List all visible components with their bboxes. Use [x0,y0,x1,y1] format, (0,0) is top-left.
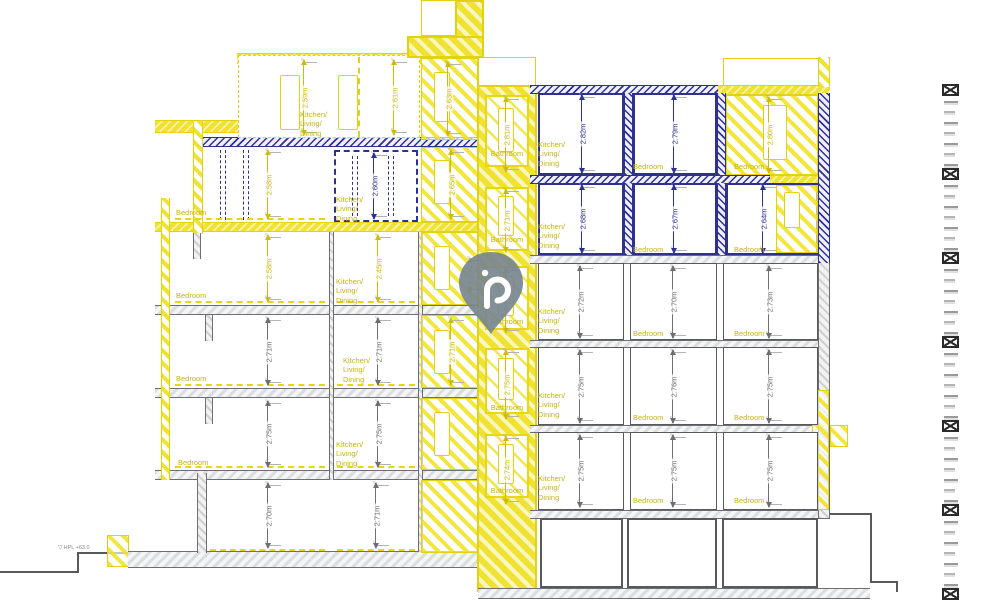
level-marker [270,320,281,321]
dimension-label: 2.75m [670,459,678,484]
floor-slab [155,388,478,398]
ground-slab [128,551,478,568]
level-marker [771,504,782,505]
level-marker [396,62,407,63]
tower-wall [455,0,484,38]
terrace-line [830,513,872,515]
exterior-wall-blue [818,93,830,263]
level-marker [675,268,686,269]
room-label: Kitchen/ Living/ Dining [538,474,565,502]
interior-wall-blue [717,93,726,175]
level-marker [508,99,519,100]
wall-hatch-yellow [830,425,848,447]
interior-wall [329,232,334,480]
room-label: Kitchen/ Living/ Dining [343,356,370,384]
scale-tick [944,311,958,313]
dimension-label: 2.75m [265,422,273,447]
attic-window [280,75,300,130]
scale-tick [944,447,955,449]
level-marker [270,237,281,238]
dimension-label: 2.61m [391,85,399,110]
room-label: Kitchen/ Living/ Dining [538,140,565,168]
level-marker [306,62,317,63]
dimension-line: 2.75m [377,401,378,467]
level-marker [376,216,387,217]
scale-tick [944,132,955,134]
level-marker [376,155,387,156]
level-marker [380,403,391,404]
scale-tick [944,479,958,481]
survey-marker-icon [942,420,959,432]
dimension-label: 2.63m [445,87,453,112]
floor-slab [155,305,478,315]
dimension-line: 2.71m [375,483,376,548]
dimension-line: 2.75m [579,435,580,507]
scale-tick [944,122,958,124]
dimension-label: 2.70m [670,290,678,315]
level-marker [450,133,461,134]
scale-tick [944,300,955,302]
scale-tick [944,363,955,365]
level-marker [676,170,687,171]
scale-tick [944,563,958,565]
level-marker [270,403,281,404]
scale-tick [944,489,955,491]
ground-line [0,571,78,573]
scale-tick [944,227,958,229]
room-label: Kitchen/ Living/ Dining [538,222,565,250]
level-marker [584,97,595,98]
room-label: Bedroom [734,496,764,505]
dimension-line: 2.71m [450,318,451,385]
location-pin-icon [456,250,526,336]
dimension-label: 2.79m [671,122,679,147]
scale-tick [944,416,958,418]
level-marker [508,352,519,353]
scale-tick [944,185,958,187]
level-marker [582,504,593,505]
scale-tick [944,153,955,155]
dimension-label: 2.71m [373,503,381,528]
room-label: Kitchen/ Living/ Dining [336,195,363,223]
location-pin[interactable] [456,250,526,336]
scale-tick [944,374,958,376]
room-label: Bedroom [633,245,663,254]
level-marker [584,187,595,188]
scale-tick [944,573,955,575]
level-marker [270,152,281,153]
level-marker [450,64,461,65]
level-marker [396,132,407,133]
terrace-line [870,513,872,583]
scale-tick [944,395,958,397]
dimension-label: 2.71m [503,208,511,233]
level-marker [675,437,686,438]
room-label: Bedroom [633,329,663,338]
scale-tick [944,332,958,334]
dimension-line: 2.58m [267,235,268,302]
level-marker [378,545,389,546]
level-marker [582,352,593,353]
room-label: Bedroom [178,458,208,467]
attic-window [338,75,358,130]
scale-tick [944,353,958,355]
stair-door [434,246,450,290]
room-label: Bathroom [479,486,535,495]
level-marker [270,216,281,217]
scale-tick [944,143,958,145]
dimension-label: 2.58m [265,256,273,281]
survey-marker-icon [942,252,959,264]
parapet-box [723,58,823,86]
scale-tick [944,552,955,554]
dimension-label: 2.45m [375,256,383,281]
sill-line [175,218,325,220]
scale-tick [944,384,955,386]
dimension-line: 2.76m [672,350,673,423]
room-label: Bedroom [734,162,764,171]
scale-tick [944,542,958,544]
scale-tick [944,321,955,323]
exterior-wall [197,473,207,553]
level-marker [582,437,593,438]
scale-strip [940,60,970,600]
level-marker [270,485,281,486]
dimension-label: 2.65m [448,172,456,197]
room-label: Bedroom [633,413,663,422]
level-marker [453,382,464,383]
dimension-label: 2.75m [577,459,585,484]
level-marker [508,191,519,192]
scale-tick [944,468,955,470]
level-marker [453,152,464,153]
level-marker [675,420,686,421]
level-marker [771,352,782,353]
scale-tick [944,500,958,502]
datum-annotation: ▽HPL +63.0 [58,544,90,551]
dimension-label: 2.60m [371,174,379,199]
room-label: Bedroom [734,245,764,254]
roof-slab-yellow [718,85,830,95]
level-marker [380,464,391,465]
dimension-line: 2.73m [768,266,769,338]
sill-line [337,549,415,551]
scale-tick [944,164,958,166]
basement-room [627,518,717,588]
dimension-label: 2.82m [579,122,587,147]
datum-label: HPL +63.0 [64,545,90,551]
room-label: Bedroom [734,329,764,338]
room-label: Bedroom [734,413,764,422]
dimension-line: 2.58m [267,150,268,219]
level-marker [380,237,391,238]
room-label: Bedroom [633,496,663,505]
scale-tick [944,290,958,292]
room-label: Bedroom [176,208,206,217]
level-marker [771,420,782,421]
exterior-wall [161,198,170,480]
room-label: Bedroom [176,374,206,383]
dimension-line: 2.45m [377,235,378,302]
core-cap [478,57,536,87]
foundation-slab [478,588,870,599]
dimension-label: 2.71m [265,339,273,364]
room-label: Bedroom [633,162,663,171]
dimension-label: 2.76m [670,374,678,399]
wall-stub [193,233,201,259]
dimension-label: 2.67m [671,207,679,232]
level-marker [380,299,391,300]
survey-marker-icon [942,588,959,600]
level-marker [675,504,686,505]
dimension-line: 2.81m [505,97,506,172]
scale-tick [944,237,955,239]
level-marker [270,464,281,465]
dimension-label: 2.75m [766,459,774,484]
room-label: Kitchen/ Living/ Dining [538,307,565,335]
dimension-line: 2.71m [377,318,378,385]
interior-wall-blue [624,183,633,255]
level-marker [771,335,782,336]
level-marker [582,335,593,336]
level-marker [508,169,519,170]
interior-wall-blue [717,183,726,255]
level-marker [453,216,464,217]
level-marker [675,335,686,336]
level-marker [771,268,782,269]
attic-divider [358,57,360,137]
dimension-label: 2.58m [265,172,273,197]
dimension-line: 2.82m [581,95,582,173]
scale-tick [944,531,955,533]
survey-marker-icon [942,336,959,348]
dimension-line: 2.65m [450,150,451,219]
terrace-line [870,581,898,583]
floor-slab-yellow [155,222,478,232]
dimension-line: 2.64m [762,185,763,253]
dimension-label: 2.75m [375,422,383,447]
dimension-line: 2.67m [673,185,674,253]
dimension-line: 2.75m [768,435,769,507]
level-marker [270,382,281,383]
level-marker [771,437,782,438]
level-marker [270,545,281,546]
terrace-line [896,581,898,592]
scale-tick [944,279,955,281]
interior-wall-blue [624,93,633,175]
level-marker [676,250,687,251]
hatched-room-door [784,192,800,228]
level-marker [771,99,782,100]
level-marker [378,485,389,486]
dimension-label: 2.81m [503,122,511,147]
level-marker [508,501,519,502]
level-marker [584,170,595,171]
dimension-label: 2.80m [766,123,774,148]
scale-tick [944,405,955,407]
scale-tick [944,458,958,460]
room-label: Bathroom [479,403,535,412]
basement-room [540,518,623,588]
scale-tick [944,521,958,523]
wall-stub [205,315,213,341]
room-label: Bedroom [176,291,206,300]
room-label: Kitchen/ Living/ Dining [300,110,327,138]
level-marker [765,250,776,251]
stair-room-hatched [421,480,478,553]
footing-hatch [107,535,129,567]
dimension-line: 2.60m [373,153,374,219]
scale-tick [944,248,958,250]
dimension-line: 2.80m [768,97,769,173]
level-triangle-icon: ▽ [58,545,63,551]
level-marker [508,438,519,439]
window-dashed [388,156,394,216]
survey-marker-icon [942,84,959,96]
dimension-line: 2.63m [447,62,448,136]
dimension-line: 2.72m [579,266,580,338]
dimension-label: 2.71m [448,339,456,364]
dimension-line: 2.75m [267,401,268,467]
tower-band [407,36,484,58]
scale-tick [944,269,958,271]
scale-tick [944,206,958,208]
room-label: Bathroom [479,149,535,158]
hook-dot-icon [482,270,488,276]
dimension-label: 2.68m [579,207,587,232]
stair-door [434,412,450,456]
dimension-label: 2.75m [577,374,585,399]
dimension-line: 2.68m [581,185,582,253]
dimension-line: 2.75m [672,435,673,507]
level-marker [676,97,687,98]
section-drawing-canvas: ▽HPL +63.0 [0,0,1000,600]
dimension-label: 2.72m [577,290,585,315]
level-marker [508,416,519,417]
level-marker [584,250,595,251]
dimension-label: 2.70m [265,503,273,528]
sill-line [175,384,325,386]
dimension-line: 2.79m [673,95,674,173]
level-marker [270,299,281,300]
dimension-line: 2.75m [579,350,580,423]
basement-room [722,518,818,588]
dimension-line: 2.70m [267,483,268,548]
dimension-label: 2.75m [766,374,774,399]
room-label: Bathroom [479,235,535,244]
scale-tick [944,216,955,218]
survey-marker-icon [942,504,959,516]
level-marker [582,268,593,269]
dimension-label: 2.73m [766,290,774,315]
dimension-line: 2.61m [393,60,394,135]
dimension-line: 2.70m [672,266,673,338]
room-label: Kitchen/ Living/ Dining [336,277,363,305]
level-marker [582,420,593,421]
scale-tick [944,195,955,197]
parapet-wall [818,57,830,87]
level-marker [380,382,391,383]
level-marker [765,187,776,188]
room-label: Kitchen/ Living/ Dining [538,391,565,419]
window-dashed [220,150,226,220]
level-marker [675,352,686,353]
survey-marker-icon [942,168,959,180]
dimension-label: 2.71m [375,339,383,364]
dimension-label: 2.59m [301,85,309,110]
sill-line [210,549,325,551]
scale-tick [944,584,958,586]
dimension-line: 2.71m [267,318,268,385]
ground-step [77,553,79,573]
window-dashed [243,150,249,220]
dimension-label: 2.74m [503,458,511,483]
dimension-line: 2.75m [768,350,769,423]
scale-tick [944,101,958,103]
dimension-label: 2.64m [760,207,768,232]
scale-tick [944,111,955,113]
level-marker [380,320,391,321]
scale-tick [944,437,958,439]
level-marker [771,170,782,171]
sill-line [175,301,325,303]
room-label: Kitchen/ Living/ Dining [336,440,363,468]
level-marker [676,187,687,188]
wall-stub [205,398,213,424]
dimension-label: 2.75m [503,372,511,397]
